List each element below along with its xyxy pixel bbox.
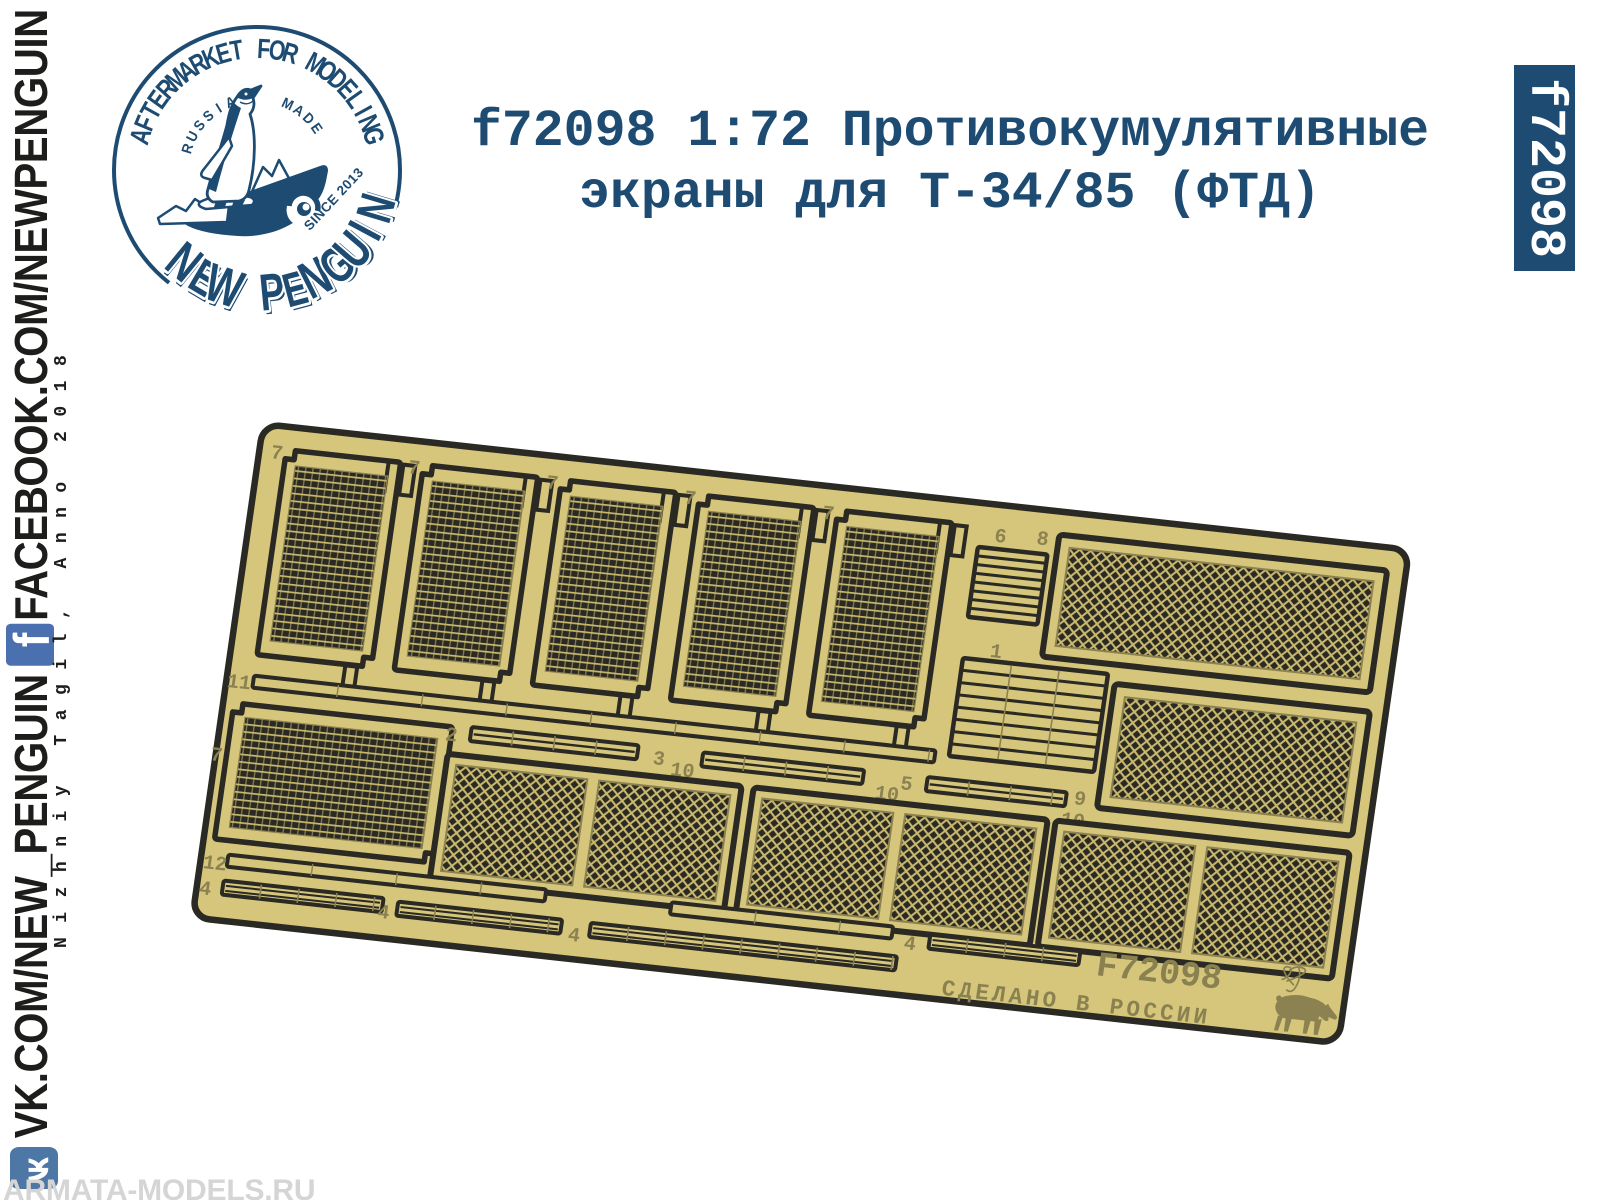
svg-text:I: I bbox=[213, 100, 225, 116]
svg-text:11: 11 bbox=[225, 671, 252, 697]
svg-text:12: 12 bbox=[201, 852, 228, 878]
